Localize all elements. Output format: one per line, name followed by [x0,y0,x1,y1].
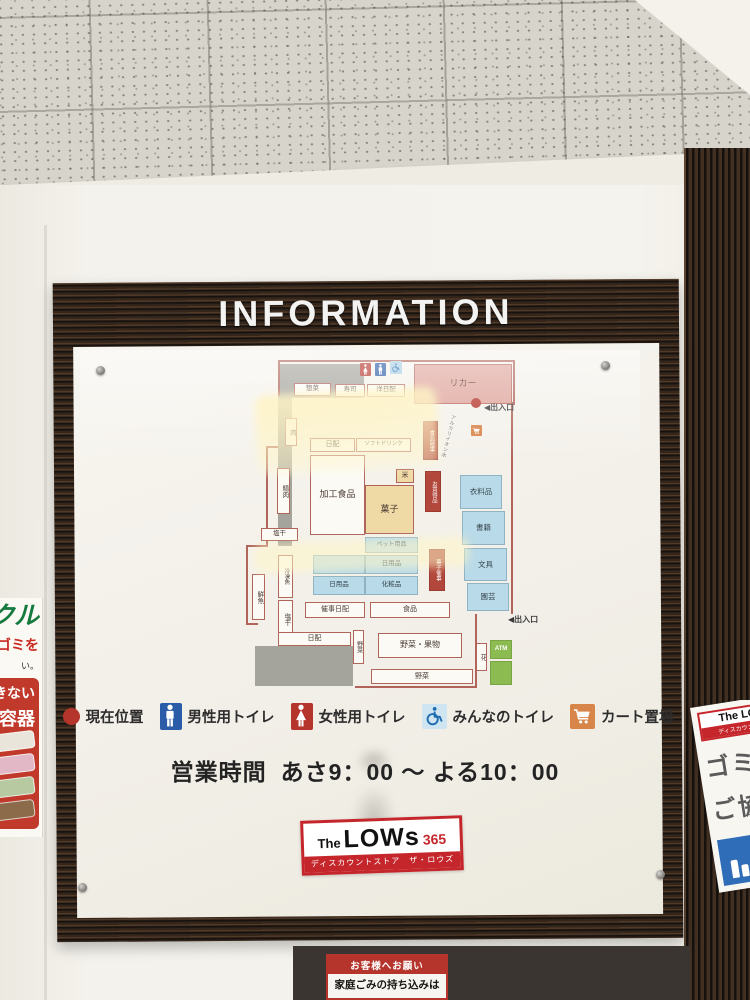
poster-box-line2: 容器 [0,705,35,731]
map-boundary-line [355,686,475,688]
map-area-souzai: 惣菜 [294,383,331,396]
store-entrance-photo: INFORMATION 惣菜寿司洋日配リカー日配ソフトドリンク肉精肉加工食品米菓… [0,0,750,1000]
sign-line2: ご協力 [709,776,750,827]
legend-label: みんなのトイレ [453,706,555,727]
map-area-niku: 肉 [285,418,297,446]
map-area-bungu: 文具 [464,548,507,581]
map-area-yasai-b: 野菜 [371,669,473,684]
map-area-yasai-kudamono: 野菜・果物 [378,633,462,658]
logo-wordmark: The LOWs 365 [303,818,460,856]
right-sign-clip: The LOWs ディスカウントストア ゴミの ご協力 [688,700,750,912]
bottle-icon [741,864,750,877]
map-exit-label: ◀出入口 [484,402,514,413]
map-area-nichihai: 日配 [310,438,355,452]
map-area-saiji-nichihai: 催事日配 [305,602,365,618]
bottle-icon [730,860,740,879]
tray-image [0,799,36,829]
map-area-reitogyo: 冷凍魚 [278,555,293,598]
current-location-icon [63,708,80,725]
map-area-hana: 花 [476,643,487,671]
map-area-irui: 衣料品 [460,475,502,509]
poster-red-box: きない 容器 [0,678,39,829]
map-area-sushi: 寿司 [335,384,365,397]
map-exit-label: ◀出入口 [508,614,538,625]
map-boundary-line [278,360,354,362]
map-area-green-blank [490,661,512,685]
map-area-kome: 米 [396,469,414,483]
map-area-okaidokuhin: お買得品 [425,471,441,512]
screw-top-right [601,361,610,370]
map-area-shoseki: 書籍 [462,511,505,545]
customer-request-sign: お客様へお願い 家庭ごみの持ち込みは [326,954,448,1000]
map-area-kashi: 菓子 [365,485,414,534]
map-area-shokuhin: 食品 [370,602,450,618]
map-service-note: アルカリイオン水 [436,414,458,476]
legend-item: 現在位置 [63,706,144,727]
poster-text-gomi: ゴミを [0,635,39,655]
map-accessible-icon [390,361,402,374]
map-area-yasai-v: 野菜 [353,630,364,664]
map-area-sengyo: 鮮魚 [252,574,265,620]
map-area-keshohin: 化粧品 [365,576,418,595]
map-male-icon [375,363,386,376]
map-boundary-line [352,360,515,362]
screw-bottom-right [656,870,665,879]
accessible-toilet-icon [422,704,447,729]
wall-corner-shadow [44,225,47,1000]
map-area-seiniku: 精肉 [277,468,290,514]
left-poster-clip: クル ゴミを い。 きない 容器 [0,598,44,920]
logo-name: LOWs [343,823,420,855]
floor-map: 惣菜寿司洋日配リカー日配ソフトドリンク肉精肉加工食品米菓子食品催事お買得品菓子催… [222,352,552,697]
board-header: INFORMATION [53,279,679,347]
legend-item: カート置場 [570,704,674,729]
map-area-kashi-saiji: 菓子催事 [429,549,445,591]
map-area-kako-shokuhin: 加工食品 [310,455,365,535]
map-area-engei: 園芸 [467,583,509,611]
map-area-nichihai-b: 日配 [278,632,351,646]
legend-label: カート置場 [601,706,674,727]
hours-label: 営業時間 [171,759,267,785]
map-boundary-line [511,404,513,614]
garbage-notice-sign: The LOWs ディスカウントストア ゴミの ご協力 [690,700,750,893]
map-boundary-line [246,623,258,625]
current-location-dot [471,398,481,408]
hours-value: あさ9：00 ～ よる10：00 [281,759,560,785]
request-sign-title: お客様へお願い [328,956,446,974]
map-area-liquor: リカー [414,364,512,404]
garbage-pictogram [717,833,750,886]
map-legend: 現在位置男性用トイレ女性用トイレみんなのトイレカート置場 [85,697,651,735]
recycle-poster: クル ゴミを い。 きない 容器 [0,598,43,837]
map-area-soft-drink: ソフトドリンク [356,438,411,452]
map-cart-icon [471,425,482,436]
cart-area-icon [570,704,595,729]
legend-item: みんなのトイレ [422,704,555,729]
map-area-blue-blank [313,555,365,574]
map-female-icon [360,363,371,376]
poster-text-small: い。 [0,659,39,672]
map-area-nichiyohin-a: 日用品 [365,555,418,574]
poster-box-line1: きない [0,683,35,703]
logo-prefix: The [317,835,341,851]
legend-label: 男性用トイレ [188,706,275,727]
legend-item: 男性用トイレ [160,703,275,730]
legend-label: 女性用トイレ [319,706,406,727]
screw-bottom-left [78,883,87,892]
map-area-shokuhin-saiji: 食品催事 [423,421,438,460]
map-area-yo-nichihai: 洋日配 [367,384,405,397]
poster-text-kuru: クル [0,604,39,629]
map-area-backroom-bottom [255,646,353,686]
map-area-nichiyohin-b: 日用品 [313,576,365,595]
map-boundary-line [246,545,268,547]
request-sign-body: 家庭ごみの持ち込みは [328,974,446,992]
legend-label: 現在位置 [86,706,144,727]
store-logo: The LOWs 365 ディスカウントストア ザ・ロウズ [300,815,464,876]
mini-logo: The LOWs ディスカウントストア [697,700,750,742]
screw-top-left [96,366,105,375]
board-title: INFORMATION [218,291,514,335]
business-hours: 営業時間あさ9：00 ～ よる10：00 [80,753,650,787]
female-toilet-icon [291,703,313,730]
sign-line1: ゴミの [703,733,750,784]
logo-suffix: 365 [423,831,447,848]
male-toilet-icon [160,703,182,730]
map-boundary-line [513,360,515,405]
map-area-atm: ATM [490,640,512,659]
map-boundary-line [246,545,248,625]
map-area-pet-yohin: ペット用品 [365,537,418,553]
legend-item: 女性用トイレ [291,703,406,730]
map-area-shiohoshi-a: 塩干 [261,528,298,541]
